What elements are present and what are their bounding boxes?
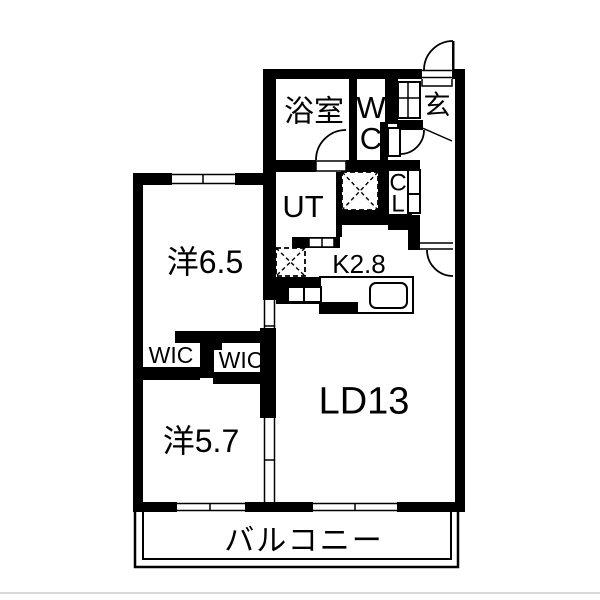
floorplan: 浴室 W C 玄 UT C L K2.8 洋6.5 WIC WIC 洋5.7 L… xyxy=(0,0,600,600)
window-living xyxy=(313,502,397,512)
kitchen-cabinet-box xyxy=(304,287,321,302)
window-bedroom2 xyxy=(177,502,245,512)
washroom-door-leaf xyxy=(388,128,400,156)
closet-door-panel xyxy=(408,170,420,194)
utility-label: UT xyxy=(282,189,323,224)
wic-right-label: WIC xyxy=(219,347,264,373)
wc-label-line1: W xyxy=(356,90,386,125)
kitchen-label: K2.8 xyxy=(332,249,386,279)
bedroom2-sliding-door xyxy=(263,418,276,502)
closet-door-panel xyxy=(408,194,420,213)
fridge-pan xyxy=(276,248,305,276)
kitchen-sink xyxy=(370,283,407,308)
kitchen-cabinet-box xyxy=(288,287,304,302)
bedroom1-sliding-door xyxy=(263,300,276,328)
wic-left-label: WIC xyxy=(149,342,194,368)
ut-door xyxy=(309,238,334,247)
closet-label-line2: L xyxy=(391,190,404,217)
bathroom-label: 浴室 xyxy=(284,96,344,129)
washer-pan xyxy=(342,172,378,210)
wc-label-line2: C xyxy=(360,121,382,156)
balcony-label: バルコニー xyxy=(224,525,383,558)
bedroom2-label: 洋5.7 xyxy=(163,423,240,459)
living-dining-label: LD13 xyxy=(319,380,410,422)
bedroom1-label: 洋6.5 xyxy=(167,244,244,280)
shoe-cabinet xyxy=(398,82,420,118)
page-baseline xyxy=(0,592,600,594)
entrance-door-leaf xyxy=(452,41,455,70)
window-bedroom1 xyxy=(172,173,235,185)
entrance-label: 玄 xyxy=(424,90,451,120)
